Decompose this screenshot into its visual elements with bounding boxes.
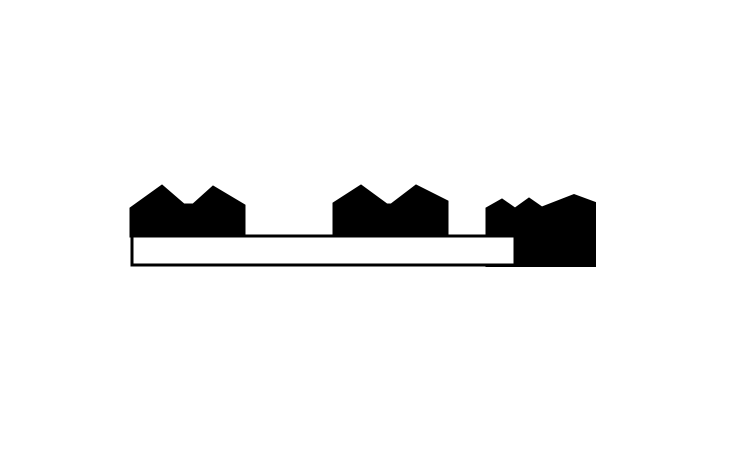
building-silhouette-middle — [333, 185, 448, 237]
building-silhouette-left — [130, 185, 245, 237]
baseline-bar — [132, 236, 515, 265]
skyline-graphic — [0, 0, 736, 460]
canvas — [0, 0, 736, 460]
